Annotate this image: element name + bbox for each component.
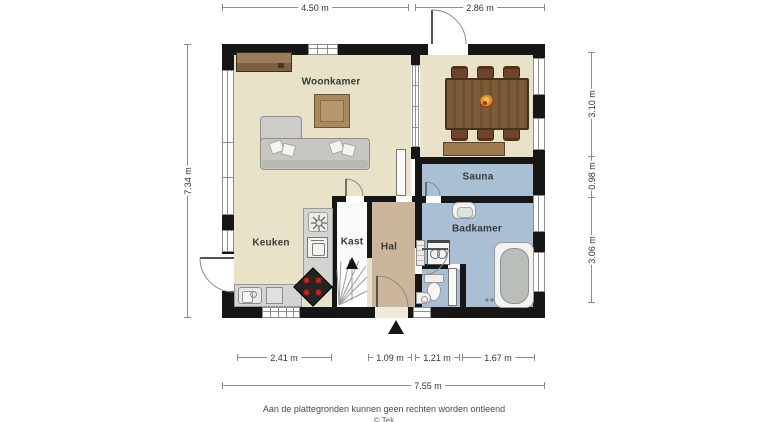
dim-tick [415, 354, 416, 361]
coffee-table-top [320, 100, 344, 122]
dim-tick [368, 354, 369, 361]
dim-tick [588, 197, 595, 198]
window-mullion [222, 142, 234, 143]
wall-wc-vertical [460, 264, 466, 307]
sofa-backrest [262, 160, 368, 168]
north-arrow-icon [388, 320, 404, 334]
sideboard-handle [278, 63, 284, 68]
dim-tick [331, 354, 332, 361]
window-bottom-wc [413, 307, 431, 318]
window-right-2 [533, 118, 545, 150]
door-opening-left-side [222, 254, 234, 291]
washbasin [452, 202, 476, 219]
dim-tick [184, 317, 191, 318]
dishwasher-icon [307, 237, 328, 258]
window-mullion [278, 307, 279, 318]
bathtub-basin [500, 248, 529, 304]
floor-closet [337, 202, 367, 258]
dim-tick [184, 44, 191, 45]
washer-knob [437, 249, 447, 259]
room-label-keuken: Keuken [252, 238, 289, 249]
partition-tick [412, 127, 419, 128]
dim-tick [534, 354, 535, 361]
window-bottom-kitchen [262, 307, 300, 318]
dim-tick [411, 354, 412, 361]
stove-burner [315, 277, 322, 284]
lowboard [443, 142, 505, 156]
kitchen-appliance [266, 287, 283, 304]
radiator [416, 240, 425, 266]
door-opening-front-hall [375, 307, 408, 318]
copyright-partial-text: © Tek [374, 416, 394, 422]
dishwasher-door [312, 243, 325, 256]
dim-tick [462, 354, 463, 361]
dishwasher-panel [311, 240, 324, 241]
glass-partition-living-dining [412, 65, 419, 147]
floor-hall [372, 202, 415, 307]
fan-blades [309, 213, 329, 233]
stove-burner [303, 277, 310, 284]
dim-tick [459, 354, 460, 361]
dim-line-bottom-total [222, 385, 545, 386]
dim-label-top-right: 2.86 m [463, 3, 497, 13]
dim-tick [588, 156, 595, 157]
door-arc-entrance [432, 10, 466, 44]
window-right-1 [533, 58, 545, 95]
dim-label-right-middle: 0.98 m [585, 161, 599, 191]
dim-tick [544, 4, 545, 11]
window-mullion [293, 307, 294, 318]
corner-basin-drain [421, 296, 428, 303]
dim-label-bottom-kitchen: 2.41 m [267, 353, 301, 363]
floorplan-page: Woonkamer Sauna Badkamer Keuken Kast Hal… [0, 0, 768, 422]
window-top-living [308, 44, 338, 55]
dim-tick [588, 302, 595, 303]
corner-basin [416, 292, 431, 304]
door-opening-sauna [426, 196, 441, 203]
window-mullion [317, 44, 318, 55]
dim-label-left: 7.34 m [181, 166, 195, 196]
dim-tick [588, 52, 595, 53]
dim-tick [222, 382, 223, 389]
dim-label-top-left: 4.50 m [298, 3, 332, 13]
window-mullion [286, 307, 287, 318]
room-label-sauna: Sauna [462, 172, 493, 183]
window-mullion [270, 307, 271, 318]
door-leaf-wc [448, 268, 457, 306]
wall-sauna-top [415, 157, 545, 164]
stove-burner [303, 289, 310, 296]
partition-tick [412, 85, 419, 86]
stove-burner [315, 289, 322, 296]
partition-tick [412, 106, 419, 107]
disclaimer-text: Aan de plattegronden kunnen geen rechten… [263, 404, 505, 414]
dim-label-bottom-total: 7.55 m [411, 381, 445, 391]
sideboard [236, 52, 292, 72]
dim-tick [408, 4, 409, 11]
room-label-kast: Kast [341, 237, 363, 248]
dim-label-right-bottom: 3.06 m [585, 235, 599, 265]
dim-label-bottom-hall: 1.09 m [373, 353, 407, 363]
bathtub [494, 242, 534, 308]
window-mullion [327, 44, 328, 55]
wall-closet-right [367, 196, 372, 258]
window-left-large [222, 70, 234, 215]
wall-divider-top-stub [411, 55, 420, 65]
door-opening-entrance-top [428, 44, 468, 55]
door-leaf-living-hall [396, 149, 406, 196]
room-label-hal: Hal [381, 242, 397, 253]
dim-tick [222, 4, 223, 11]
window-right-3 [533, 195, 545, 232]
kitchen-sink [238, 287, 262, 304]
window-mullion [222, 177, 234, 178]
dim-label-bottom-wc: 1.21 m [420, 353, 454, 363]
window-right-4 [533, 252, 545, 292]
dim-tick [544, 382, 545, 389]
window-left-small [222, 230, 234, 252]
door-opening-closet [346, 196, 364, 202]
door-opening-living-hall [396, 196, 412, 202]
washing-machine [427, 240, 450, 265]
extractor-fan-icon [308, 212, 328, 232]
dim-tick [415, 4, 416, 11]
fruit [483, 101, 487, 105]
dim-label-bottom-bath: 1.67 m [481, 353, 515, 363]
coffee-table [314, 94, 350, 128]
dim-tick [237, 354, 238, 361]
floor-stairs [337, 258, 367, 307]
room-label-woonkamer: Woonkamer [302, 77, 361, 88]
washbasin-bowl [457, 207, 473, 218]
fruit-bowl [480, 95, 494, 108]
dim-label-right-top: 3.10 m [585, 89, 599, 119]
room-label-badkamer: Badkamer [452, 224, 502, 235]
sink-faucet [250, 291, 257, 298]
